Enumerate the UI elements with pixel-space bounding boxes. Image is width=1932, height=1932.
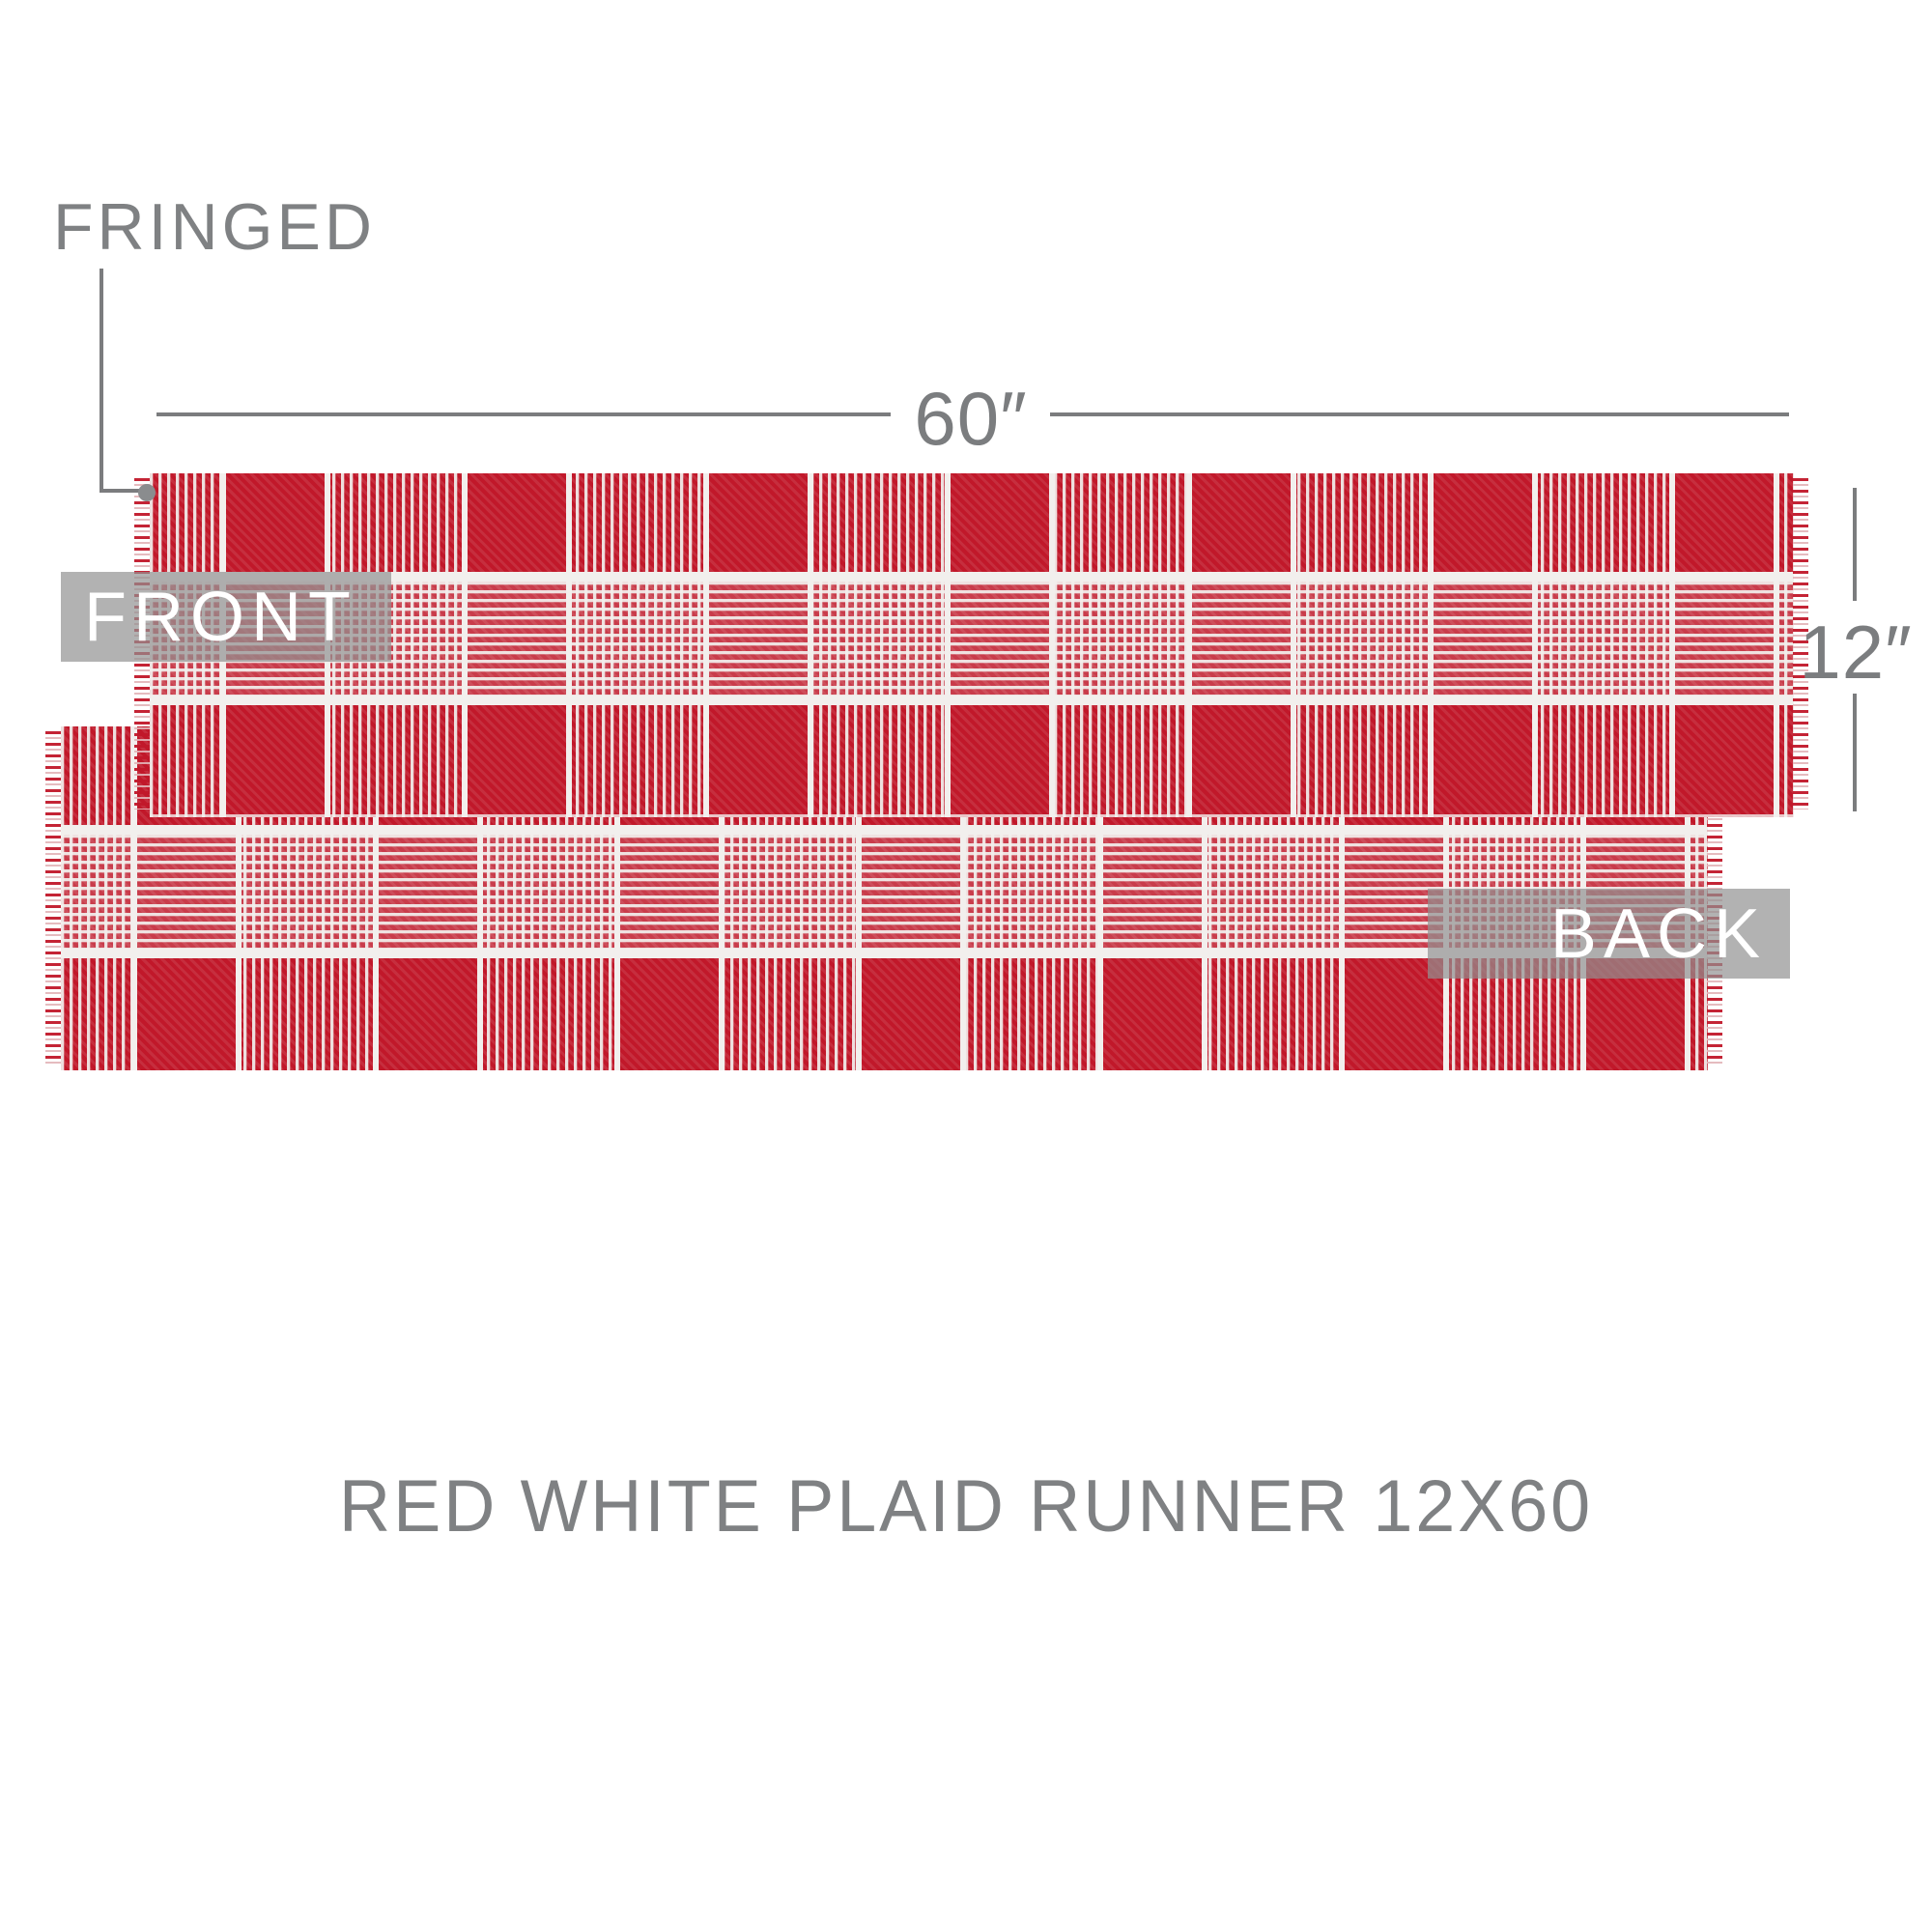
- runner-front-fabric: [150, 473, 1794, 817]
- height-dimension-line-bottom: [1853, 694, 1857, 811]
- front-label: FRONT: [84, 578, 357, 657]
- width-dimension-value: 60″: [889, 375, 1053, 463]
- width-dimension-line-right: [1050, 412, 1789, 416]
- back-label: BACK: [1550, 895, 1767, 974]
- product-dimension-image: FRONT BACK FRINGED 60″ 12″ RED WHITE PLA…: [0, 0, 1932, 1932]
- back-label-band: BACK: [1428, 889, 1790, 979]
- runner-front-view: [150, 473, 1794, 817]
- front-label-band: FRONT: [61, 572, 391, 662]
- product-caption: RED WHITE PLAID RUNNER 12X60: [29, 1464, 1903, 1548]
- fringed-pointer-vertical-line: [99, 269, 103, 493]
- height-dimension-line-top: [1853, 488, 1857, 601]
- fringed-label: FRINGED: [53, 189, 376, 265]
- width-dimension-line-left: [156, 412, 891, 416]
